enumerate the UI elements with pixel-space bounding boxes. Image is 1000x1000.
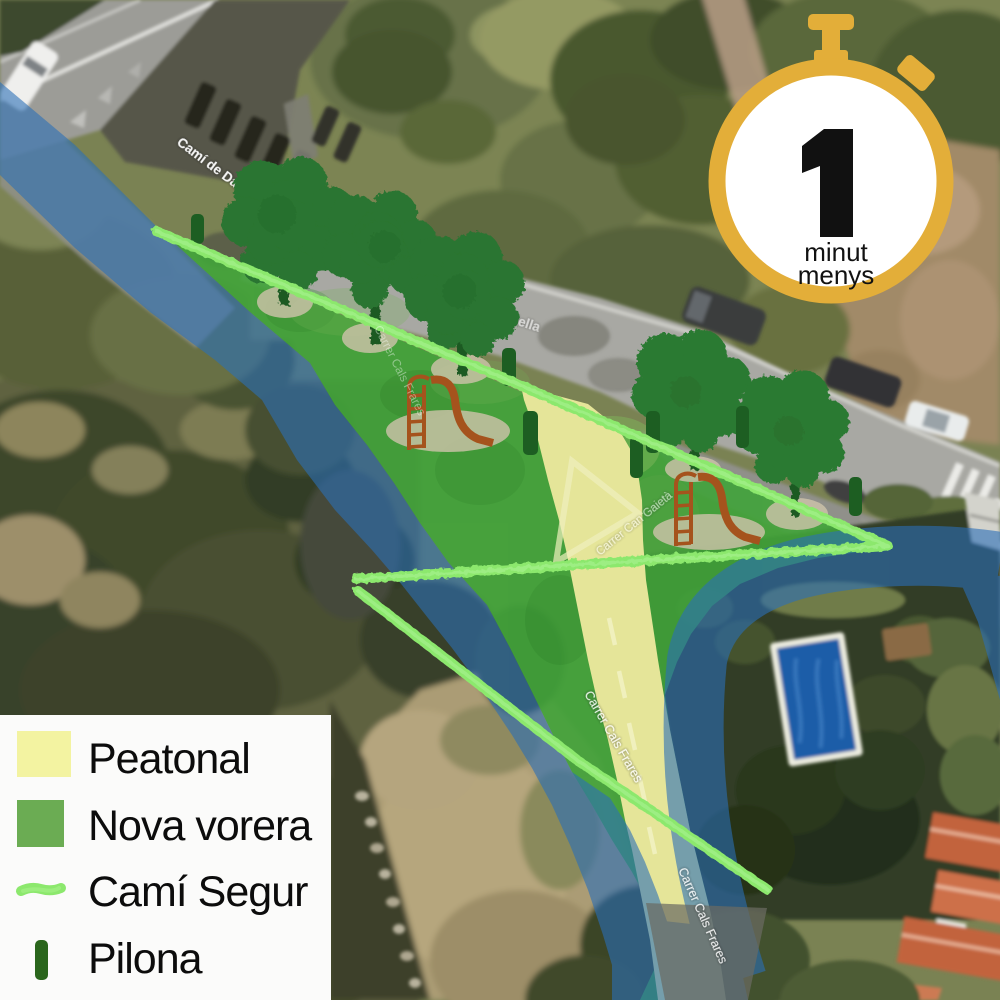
svg-text:Nova vorera: Nova vorera	[88, 802, 312, 850]
svg-text:Camí Segur: Camí Segur	[88, 868, 308, 916]
svg-text:menys: menys	[798, 260, 875, 290]
svg-text:Pilona: Pilona	[88, 935, 203, 983]
svg-text:Peatonal: Peatonal	[88, 735, 250, 783]
